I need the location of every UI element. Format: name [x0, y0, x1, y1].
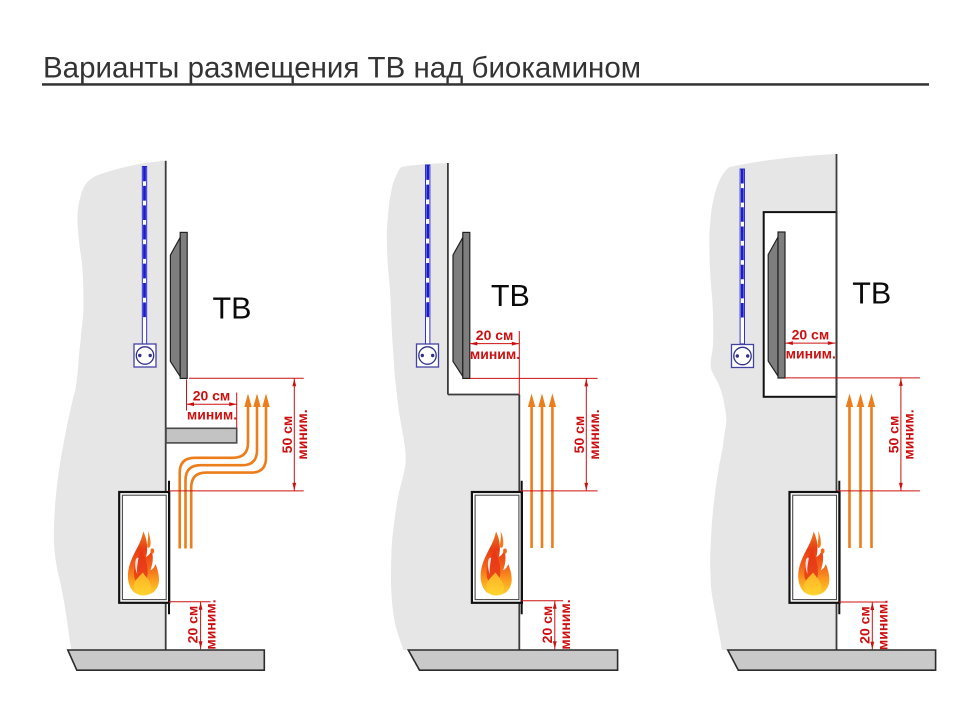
- svg-text:20 см: 20 см: [476, 327, 514, 343]
- svg-text:Варианты размещения ТВ над био: Варианты размещения ТВ над биокамином: [43, 52, 641, 85]
- svg-text:миним.: миним.: [470, 346, 520, 362]
- svg-text:миним.: миним.: [586, 409, 602, 459]
- svg-text:миним.: миним.: [900, 409, 916, 459]
- svg-text:миним.: миним.: [786, 345, 836, 361]
- svg-text:20 см: 20 см: [856, 606, 872, 644]
- svg-text:миним.: миним.: [187, 407, 237, 423]
- svg-text:50 см: 50 см: [885, 416, 901, 454]
- svg-text:миним.: миним.: [203, 599, 219, 649]
- svg-text:ТВ: ТВ: [852, 277, 891, 311]
- svg-text:ТВ: ТВ: [491, 279, 530, 313]
- svg-text:20 см: 20 см: [193, 388, 231, 404]
- svg-text:миним.: миним.: [557, 599, 573, 649]
- svg-text:ТВ: ТВ: [213, 292, 252, 326]
- svg-text:20 см: 20 см: [792, 327, 830, 343]
- svg-text:20 см: 20 см: [185, 606, 201, 644]
- svg-text:20 см: 20 см: [539, 606, 555, 644]
- svg-text:миним.: миним.: [294, 409, 310, 459]
- svg-text:50 см: 50 см: [571, 416, 587, 454]
- svg-text:50 см: 50 см: [279, 416, 295, 454]
- svg-text:миним.: миним.: [874, 600, 890, 650]
